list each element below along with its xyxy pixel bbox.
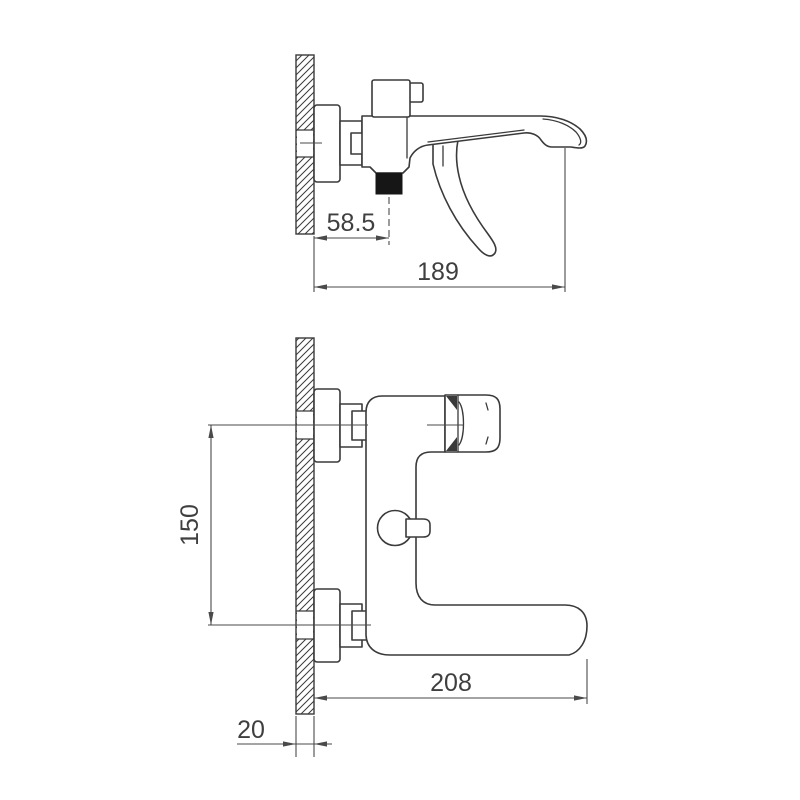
dimension-wall-to-body-end: 208 — [314, 659, 587, 704]
dimension-wall-to-outlet: 58.5 — [314, 197, 389, 292]
dim-label-150: 150 — [176, 504, 204, 546]
wall-section-front — [296, 338, 314, 714]
dimension-wall-thickness: 20 — [237, 716, 332, 757]
faucet-dimension-drawing: 58.5 189 — [0, 0, 800, 800]
dim-label-208: 208 — [430, 669, 472, 697]
diverter-block — [372, 80, 410, 117]
front-view: 150 208 20 — [176, 338, 587, 757]
side-view: 58.5 189 — [296, 55, 586, 292]
dimension-port-spacing: 150 — [176, 425, 214, 625]
technical-drawing-page: 58.5 189 — [0, 0, 800, 800]
diverter-knob-tab — [406, 519, 430, 537]
dim-label-189: 189 — [417, 258, 459, 286]
valve-body-and-spout — [362, 116, 586, 173]
shower-outlet — [376, 173, 402, 194]
diverter-ear — [409, 83, 423, 102]
dim-label-20: 20 — [237, 716, 265, 744]
dim-label-58-5: 58.5 — [327, 209, 376, 237]
